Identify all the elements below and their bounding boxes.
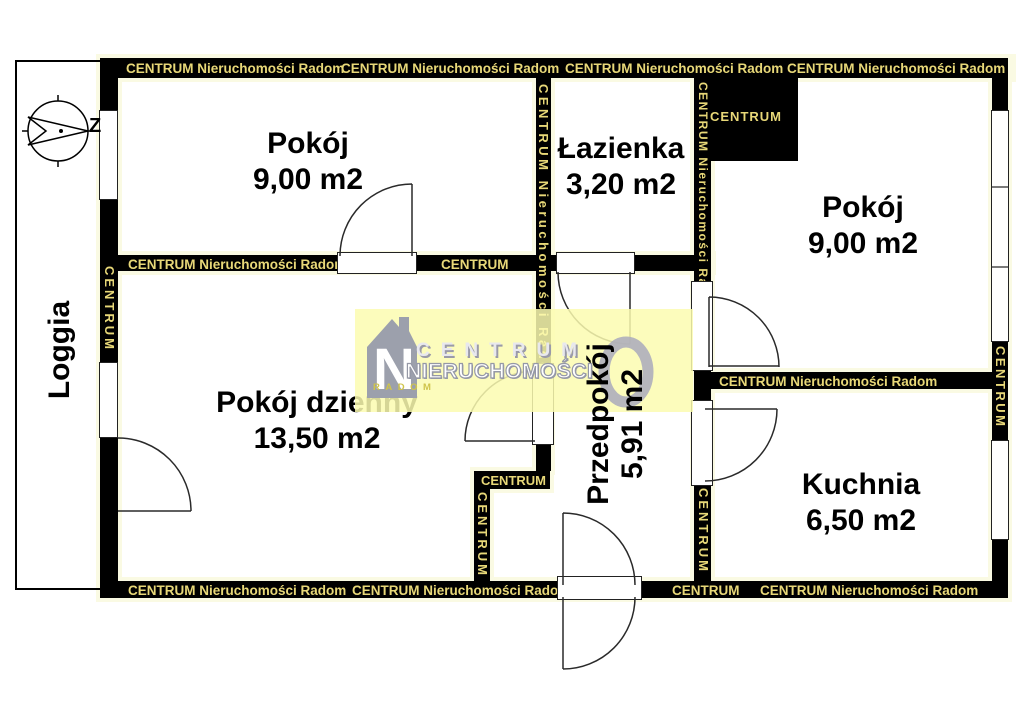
room-name: Łazienka [511, 131, 731, 167]
compass-pivot [59, 129, 63, 133]
room-name: Loggia [43, 301, 77, 399]
floor-plan: CENTRUM CENTRUM Nieruchomości Radom CENT… [0, 0, 1024, 724]
room-area: 13,50 m2 [167, 421, 467, 457]
compass-needle [28, 117, 88, 145]
room-name: Przedpokój [582, 343, 616, 505]
room-name: Pokój [188, 126, 428, 162]
window-mullions [991, 187, 1009, 267]
room-area: 3,20 m2 [511, 167, 731, 203]
room-name: Pokój [753, 190, 973, 226]
room-label-lazienka: Łazienka 3,20 m2 [511, 131, 731, 203]
room-label-kuchnia: Kuchnia 6,50 m2 [751, 467, 971, 539]
room-area: 9,00 m2 [188, 162, 428, 198]
door-arc-room2 [709, 297, 779, 367]
logo-city-text: RADOM [373, 382, 436, 393]
entrance-door-arc-outer [563, 597, 635, 669]
room-name: Kuchnia [751, 467, 971, 503]
room-label-przedpokoj: Przedpokój 5,91 m2 [524, 334, 708, 514]
entrance-door-arc-inner [563, 513, 635, 585]
room-area: 6,50 m2 [751, 503, 971, 539]
room-area: 5,91 m2 [616, 369, 650, 479]
room-area: 9,00 m2 [753, 226, 973, 262]
compass-letter: Z [89, 115, 101, 138]
room-label-loggia: Loggia [10, 300, 110, 400]
room-label-pokoj1: Pokój 9,00 m2 [188, 126, 428, 198]
room-label-pokoj2: Pokój 9,00 m2 [753, 190, 973, 262]
